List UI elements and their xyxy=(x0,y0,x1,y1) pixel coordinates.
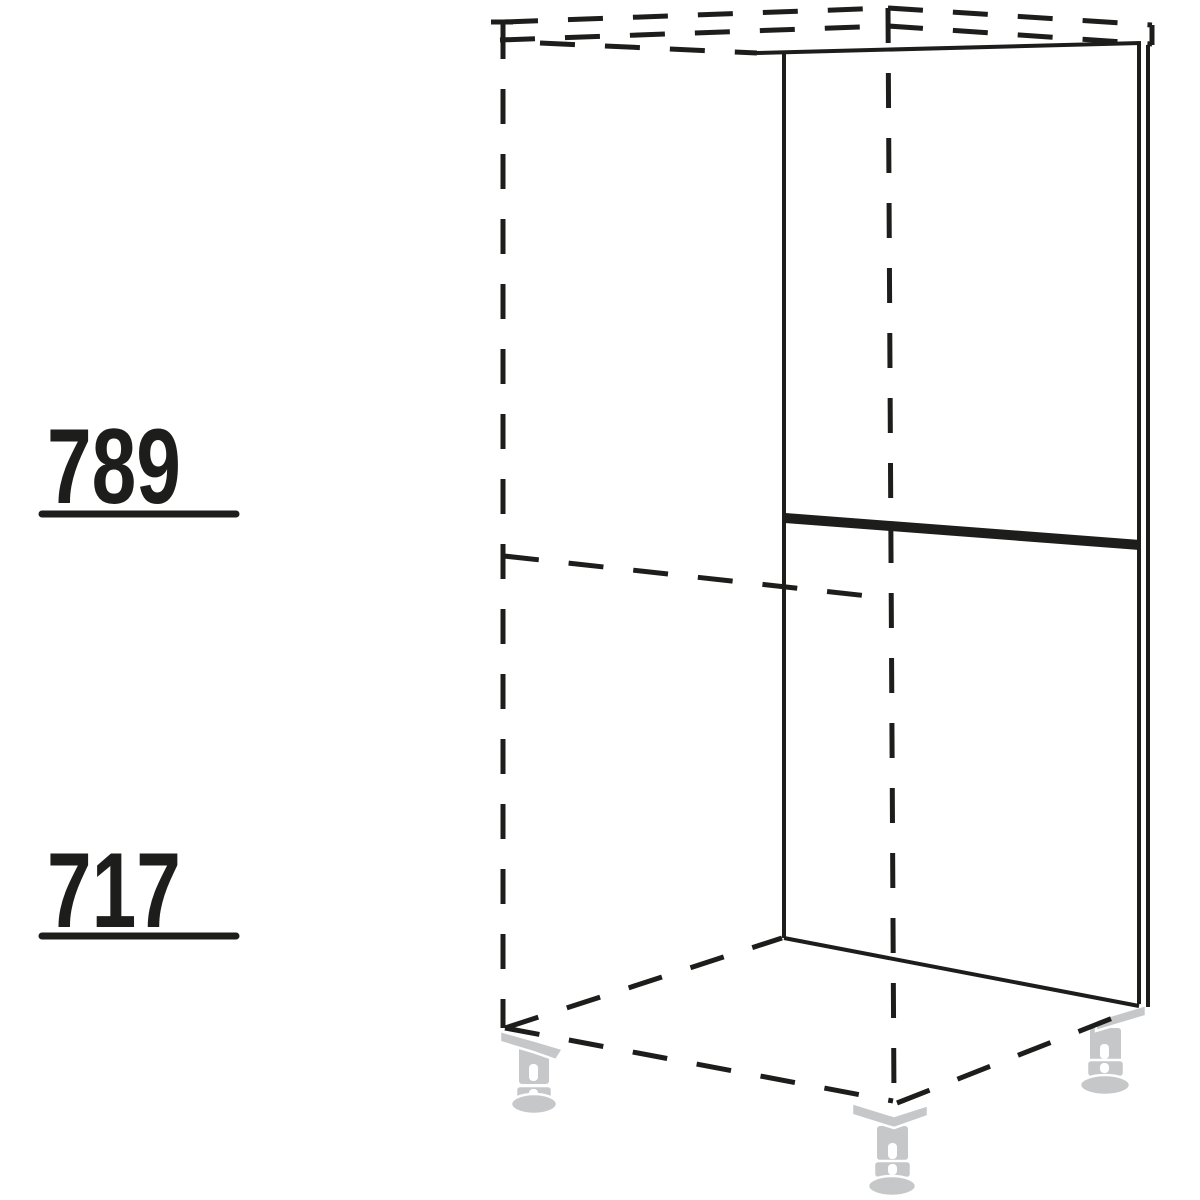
adjustable-foot-right-icon xyxy=(1080,1005,1146,1095)
foot-slot xyxy=(1100,1044,1109,1059)
foot-plate xyxy=(852,1103,928,1128)
top-door-hidden-edge xyxy=(540,43,757,53)
upper-door-top-edge xyxy=(757,43,1141,53)
front-corner-vertical-edge xyxy=(888,8,894,1102)
door-panels-solid-lines xyxy=(757,43,1148,1007)
foot-base xyxy=(868,1176,916,1196)
dimension-upper-value: 789 xyxy=(47,407,181,527)
foot-base xyxy=(511,1094,557,1114)
foot-slot xyxy=(529,1064,538,1081)
top-front-edge-right xyxy=(888,26,1152,44)
dimension-lower: 717 xyxy=(42,831,236,951)
top-back-edge-left xyxy=(503,8,888,22)
cabinet-carcass-dashed-outline xyxy=(491,8,1152,1103)
foot-collar-slot xyxy=(888,1164,897,1175)
technical-drawing-canvas: 789 717 xyxy=(0,0,1200,1200)
foot-slot xyxy=(888,1143,897,1159)
mid-shelf-hidden-edge xyxy=(504,556,868,596)
adjustable-foot-left-icon xyxy=(500,1031,563,1114)
door-divider-edge xyxy=(785,518,1140,545)
adjustable-foot-front-icon xyxy=(852,1103,928,1196)
bottom-back-edge xyxy=(505,938,782,1028)
bottom-left-front-edge xyxy=(505,1028,893,1101)
dimension-labels: 789 717 xyxy=(42,407,236,951)
door-bottom-edge xyxy=(784,938,1139,1006)
dimension-upper: 789 xyxy=(42,407,236,527)
foot-plate xyxy=(1096,1005,1146,1031)
foot-base xyxy=(1080,1075,1130,1095)
adjustable-feet xyxy=(500,1005,1146,1196)
top-front-edge-left xyxy=(500,26,888,40)
top-back-edge-right xyxy=(888,8,1152,25)
cabinet-drawing: 789 717 xyxy=(0,0,1200,1200)
foot-collar-slot xyxy=(1100,1063,1109,1073)
